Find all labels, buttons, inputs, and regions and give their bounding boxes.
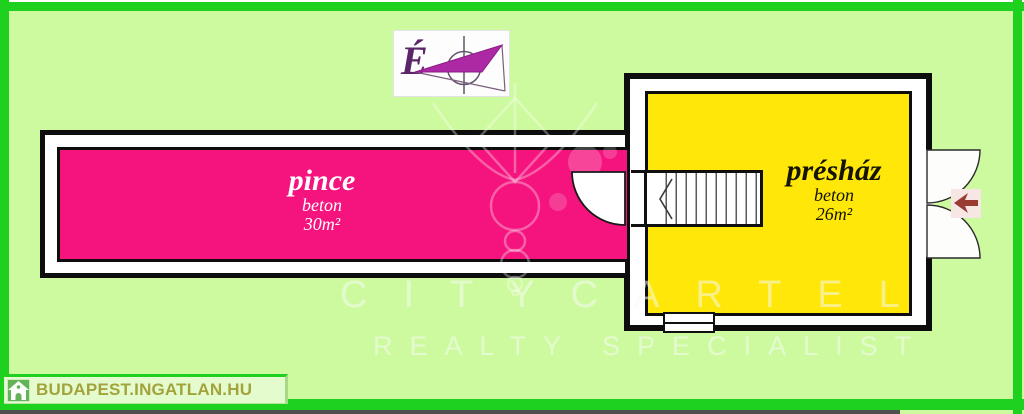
room-name-pince: pince <box>192 166 452 196</box>
frame-left <box>0 0 9 414</box>
floorplan-canvas: pince beton 30m² présház beton 26m² CITY… <box>0 0 1024 414</box>
house-icon <box>7 379 30 402</box>
pince-door-arc <box>553 169 628 229</box>
room-name-preshaz: présház <box>704 156 964 186</box>
site-name: BUDAPEST.INGATLAN.HU <box>36 380 252 400</box>
stair-direction-chevron-icon <box>645 175 679 225</box>
room-label-preshaz: présház beton 26m² <box>704 156 964 224</box>
room-material-preshaz: beton <box>704 186 964 205</box>
compass-rose: É <box>393 30 510 97</box>
room-material-pince: beton <box>192 196 452 215</box>
site-logo-badge: BUDAPEST.INGATLAN.HU <box>4 374 288 404</box>
basement-window-bar <box>665 322 713 324</box>
room-label-pince: pince beton 30m² <box>192 166 452 234</box>
compass-needle-icon <box>394 31 509 96</box>
room-area-pince: 30m² <box>192 215 452 234</box>
watermark-brand: CITYCARTEL <box>340 274 936 317</box>
watermark-tagline: REALTY SPECIALIST <box>373 331 928 362</box>
frame-bottom-shadow <box>0 410 900 414</box>
frame-right <box>1013 0 1022 414</box>
frame-top <box>0 2 1024 11</box>
room-area-preshaz: 26m² <box>704 205 964 224</box>
